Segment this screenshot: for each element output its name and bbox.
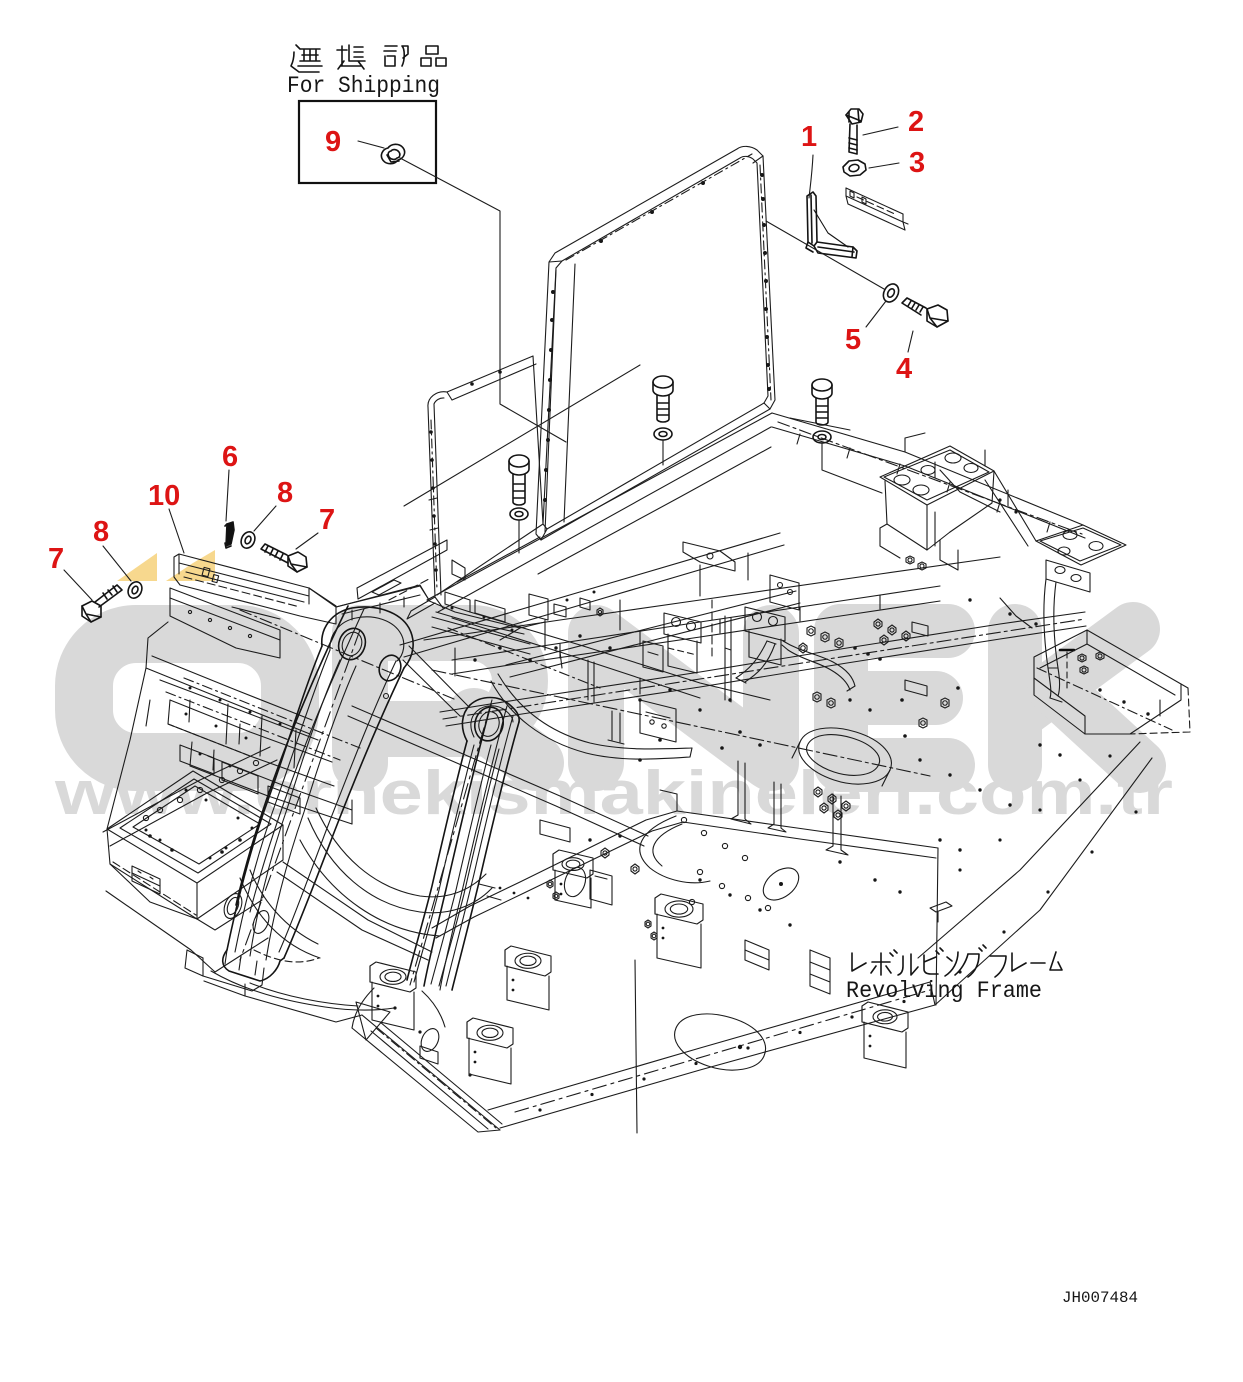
svg-text:10: 10	[148, 480, 180, 512]
svg-text:For Shipping: For Shipping	[287, 73, 440, 99]
svg-text:8: 8	[277, 477, 293, 509]
svg-text:1: 1	[801, 121, 817, 153]
svg-text:3: 3	[909, 147, 925, 179]
svg-text:7: 7	[319, 504, 335, 536]
svg-text:9: 9	[325, 126, 341, 158]
svg-text:7: 7	[48, 543, 64, 575]
svg-text:Revolving Frame: Revolving Frame	[846, 978, 1042, 1004]
svg-text:5: 5	[845, 324, 861, 356]
svg-text:JH007484: JH007484	[1062, 1289, 1138, 1307]
svg-text:2: 2	[908, 106, 924, 138]
svg-text:4: 4	[896, 353, 912, 385]
svg-text:8: 8	[93, 516, 109, 548]
svg-text:6: 6	[222, 441, 238, 473]
